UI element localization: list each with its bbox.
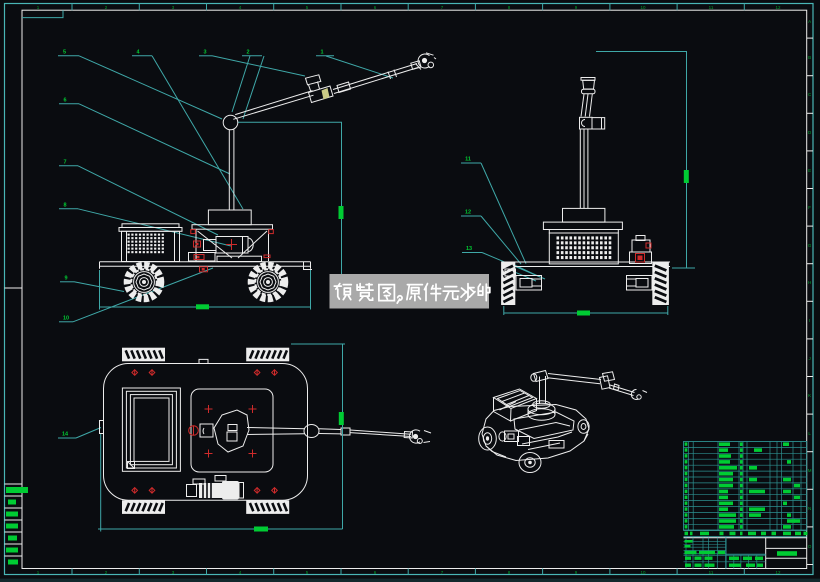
svg-text:K: K <box>808 393 811 398</box>
svg-text:M: M <box>808 468 812 473</box>
svg-text:7: 7 <box>63 160 66 166</box>
svg-text:10: 10 <box>640 570 646 575</box>
svg-text:3: 3 <box>203 50 206 56</box>
svg-text:11: 11 <box>465 157 471 163</box>
svg-text:5: 5 <box>63 50 66 56</box>
svg-text:2: 2 <box>246 50 249 56</box>
svg-text:6: 6 <box>63 98 66 104</box>
svg-text:J: J <box>808 356 810 361</box>
svg-text:12: 12 <box>465 210 471 216</box>
svg-text:8: 8 <box>63 203 66 209</box>
svg-text:9: 9 <box>64 276 67 282</box>
svg-text:12: 12 <box>775 570 781 575</box>
svg-text:10: 10 <box>63 316 69 322</box>
svg-text:13: 13 <box>466 246 472 252</box>
svg-text:N: N <box>808 506 811 511</box>
svg-text:F: F <box>808 205 811 210</box>
svg-text:1: 1 <box>320 50 323 56</box>
svg-text:A: A <box>808 19 811 24</box>
svg-text:I: I <box>809 318 810 323</box>
svg-text:O: O <box>808 544 812 549</box>
svg-text:14: 14 <box>62 432 69 438</box>
svg-text:H: H <box>808 280 811 285</box>
svg-text:10: 10 <box>640 5 646 10</box>
svg-text:E: E <box>808 168 811 173</box>
svg-text:11: 11 <box>709 570 714 575</box>
svg-text:12: 12 <box>775 5 781 10</box>
svg-text:G: G <box>808 243 812 248</box>
svg-text:B: B <box>808 55 811 60</box>
svg-text:11: 11 <box>709 5 714 10</box>
